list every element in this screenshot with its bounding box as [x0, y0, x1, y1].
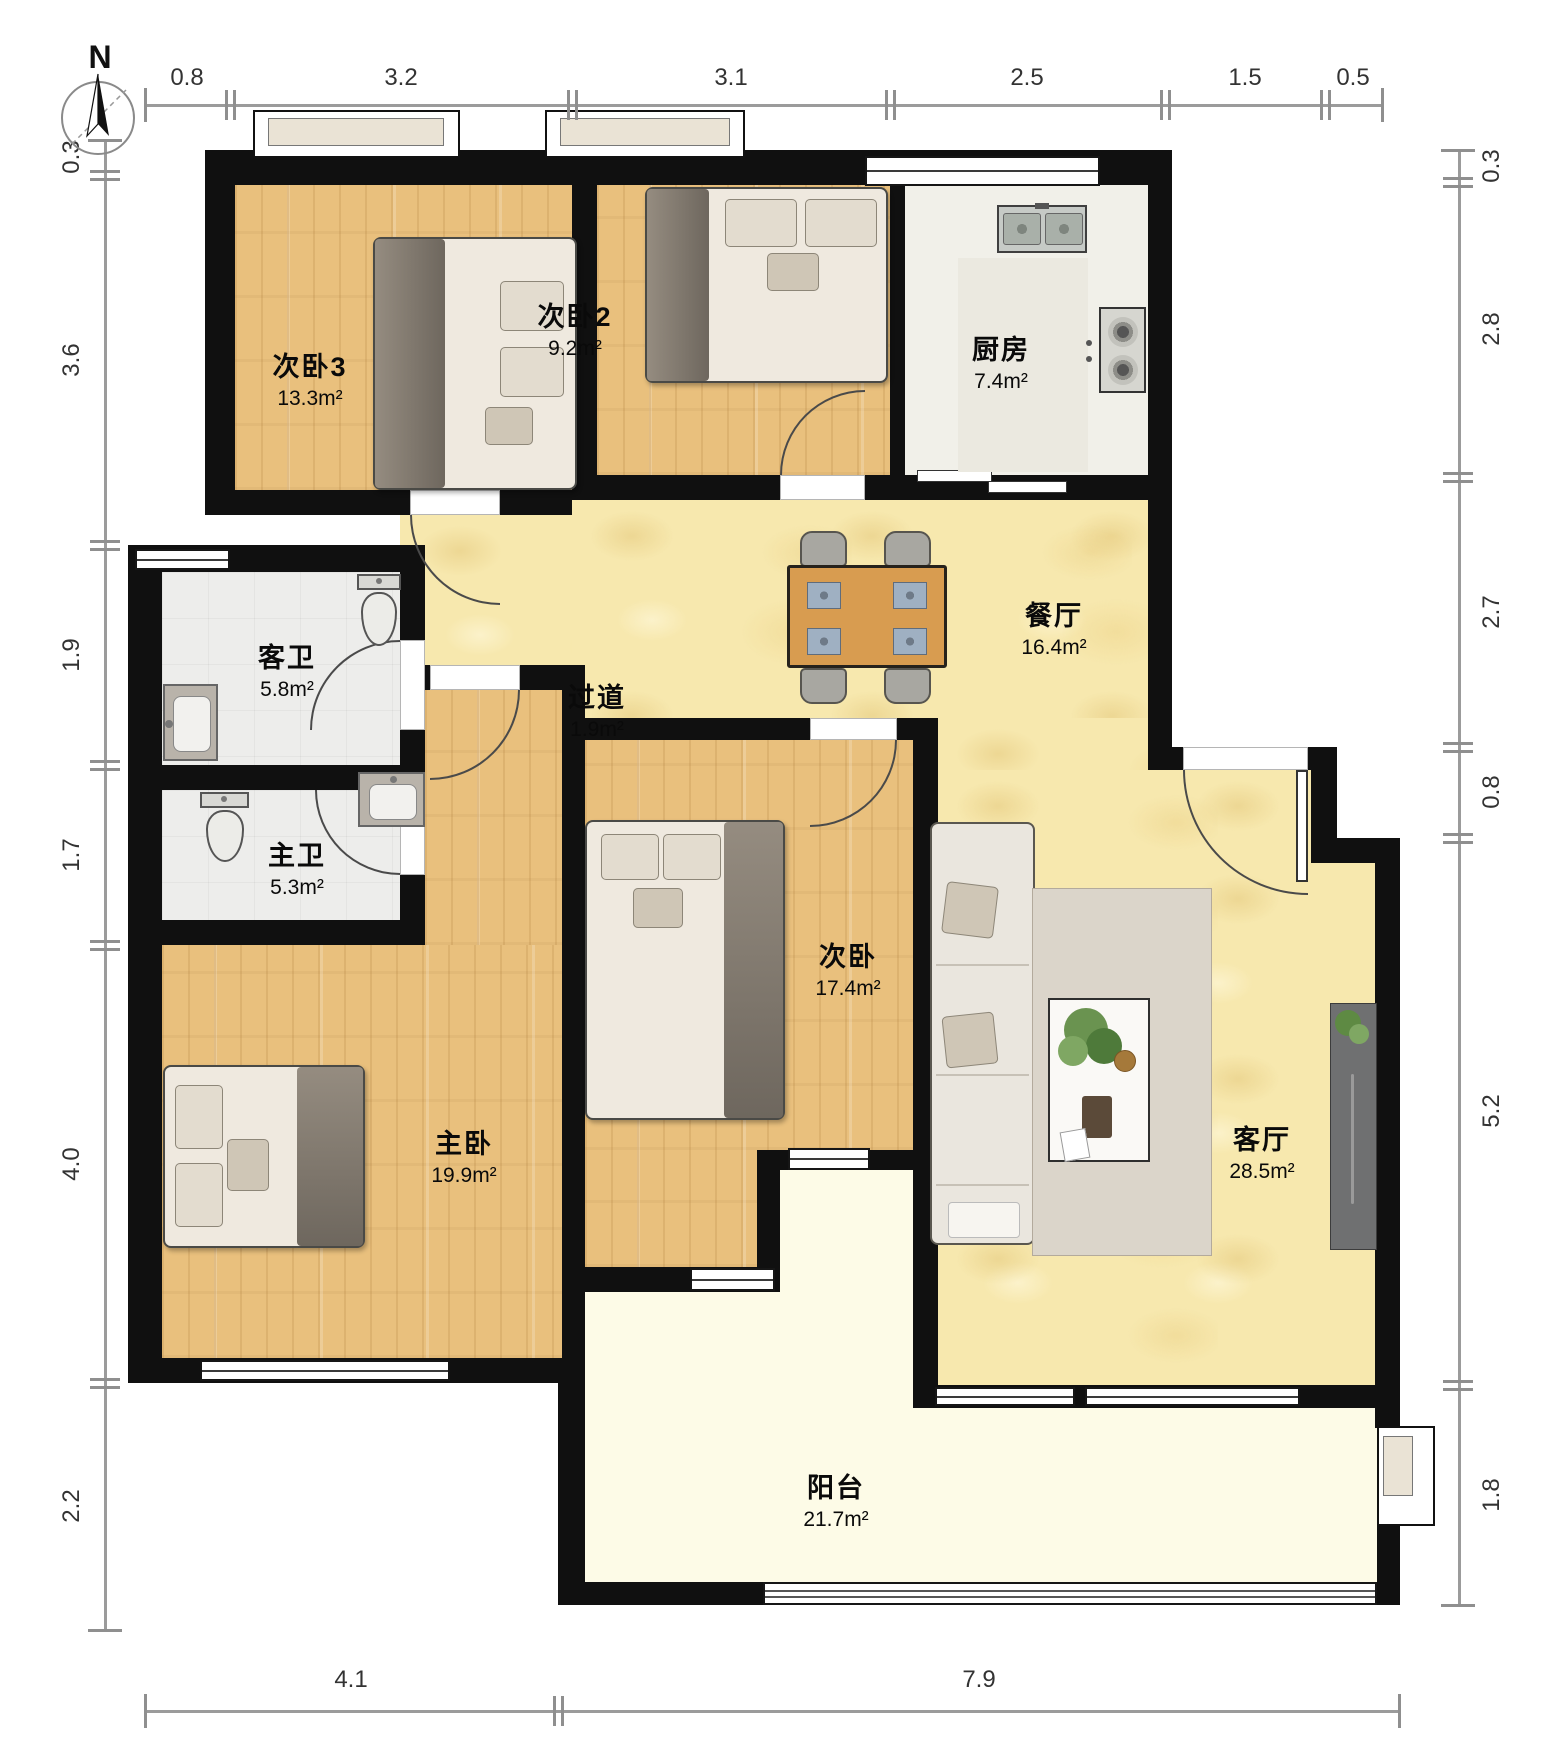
- room-name: 次卧: [815, 935, 880, 974]
- dim-label: 1.8: [1478, 1478, 1506, 1511]
- bay-window-sill: [560, 118, 730, 146]
- room-label-master-bedroom: 主卧 19.9m²: [431, 1122, 496, 1188]
- room-name: 过道: [568, 676, 626, 715]
- wall: [205, 150, 235, 515]
- door-second-bedroom: [810, 718, 897, 740]
- floor-balcony-right: [913, 1408, 1377, 1582]
- door-bedroom3: [410, 490, 500, 515]
- wall: [868, 1150, 913, 1170]
- dim-tick: [90, 548, 120, 551]
- window-kitchen: [865, 156, 1100, 186]
- dim-line-top: [145, 104, 1382, 107]
- dim-label: 4.1: [334, 1666, 367, 1694]
- dim-tick: [1443, 833, 1473, 836]
- ac-platform-inner: [1383, 1436, 1413, 1496]
- dim-label: 3.2: [384, 64, 417, 92]
- room-label-bedroom2: 次卧2 9.2m²: [537, 295, 612, 361]
- room-name: 主卧: [431, 1122, 496, 1161]
- wall: [1375, 838, 1400, 1428]
- wall: [500, 490, 572, 515]
- dim-label: 0.8: [170, 64, 203, 92]
- dim-tick: [90, 1378, 120, 1381]
- dining-chair: [800, 668, 847, 704]
- wall: [558, 1582, 763, 1605]
- wall: [128, 920, 425, 945]
- toilet-guest-bath: [357, 574, 402, 648]
- sink-master-bath: [358, 772, 425, 827]
- dim-tick: [1441, 1604, 1475, 1607]
- bay-window-sill: [268, 118, 444, 146]
- dim-tick: [1328, 90, 1331, 120]
- room-label-master-bath: 主卫 5.3m²: [268, 834, 326, 900]
- bed-bedroom3: [373, 237, 577, 490]
- dim-tick: [1160, 90, 1163, 120]
- dim-label: 1.5: [1228, 64, 1261, 92]
- window-master-bedroom: [200, 1360, 450, 1381]
- dim-label: 2.5: [1010, 64, 1043, 92]
- stove-knob: [1086, 340, 1092, 346]
- dim-tick: [1443, 185, 1473, 188]
- dim-label: 3.6: [58, 343, 86, 376]
- stove-knob: [1086, 356, 1092, 362]
- dining-chair: [800, 531, 847, 567]
- wall: [572, 475, 780, 500]
- door-guest-bath: [400, 640, 425, 730]
- window-living-left: [935, 1387, 1075, 1406]
- stove: [1099, 307, 1146, 393]
- dining-chair: [884, 531, 931, 567]
- dim-label: 2.2: [58, 1489, 86, 1522]
- dim-tick: [1441, 149, 1475, 152]
- wall: [1311, 838, 1400, 863]
- compass: N: [48, 38, 148, 158]
- room-name: 餐厅: [1021, 594, 1086, 633]
- dim-label: 2.7: [1478, 595, 1506, 628]
- kitchen-sink: [997, 205, 1087, 253]
- room-label-living: 客厅 28.5m²: [1229, 1118, 1294, 1184]
- dim-tick: [553, 1696, 556, 1726]
- dim-tick: [1443, 480, 1473, 483]
- floor-second-bedroom-bay: [585, 1150, 757, 1267]
- dim-tick: [90, 540, 120, 543]
- dim-tick: [1381, 88, 1384, 122]
- wall: [897, 718, 913, 740]
- room-name: 次卧3: [272, 345, 347, 384]
- dim-tick: [90, 170, 120, 173]
- dim-tick: [90, 940, 120, 943]
- room-area: 16.4m²: [1021, 636, 1086, 660]
- dim-tick: [1443, 1388, 1473, 1391]
- door-master-bedroom: [430, 665, 520, 690]
- dim-tick: [885, 90, 888, 120]
- room-area: 13.3m²: [272, 387, 347, 411]
- compass-north-label: N: [88, 39, 111, 75]
- bed-bedroom2: [645, 187, 888, 383]
- wall: [1148, 150, 1172, 770]
- wall: [865, 475, 890, 500]
- dim-tick: [1443, 177, 1473, 180]
- dim-tick: [1320, 90, 1323, 120]
- wall: [400, 875, 425, 945]
- room-name: 主卫: [268, 834, 326, 873]
- dim-label: 2.8: [1478, 312, 1506, 345]
- dim-tick: [88, 1629, 122, 1632]
- dim-tick: [90, 760, 120, 763]
- balcony-railing: [763, 1582, 1377, 1605]
- dim-tick: [1443, 742, 1473, 745]
- room-label-hallway: 过道 1.9m²: [568, 676, 626, 742]
- room-name: 次卧2: [537, 295, 612, 334]
- dim-line-left: [104, 140, 107, 1630]
- wall: [128, 545, 162, 1383]
- room-label-bedroom3: 次卧3 13.3m²: [272, 345, 347, 411]
- room-name: 客卫: [258, 636, 316, 675]
- dim-label: 1.9: [58, 638, 86, 671]
- sink-guest-bath: [163, 684, 218, 761]
- wall: [780, 1150, 788, 1170]
- dining-table: [787, 565, 947, 668]
- dim-tick: [1443, 750, 1473, 753]
- dim-label: 5.2: [1478, 1094, 1506, 1127]
- compass-icon: N: [48, 38, 148, 158]
- room-area: 7.4m²: [972, 370, 1030, 394]
- dim-line-right: [1458, 150, 1461, 1605]
- bed-master: [163, 1065, 365, 1248]
- floor-dining-south: [938, 718, 1148, 770]
- wall: [1377, 1523, 1400, 1605]
- window-second-bedroom-bay: [690, 1268, 775, 1291]
- room-area: 17.4m²: [815, 977, 880, 1001]
- dim-label: 3.1: [714, 64, 747, 92]
- door-bedroom2: [780, 475, 865, 500]
- dim-tick: [1443, 472, 1473, 475]
- dim-tick: [1168, 90, 1171, 120]
- dim-tick: [225, 90, 228, 120]
- room-area: 9.2m²: [537, 337, 612, 361]
- wall: [890, 185, 905, 500]
- window-living-right: [1085, 1387, 1300, 1406]
- dim-label: 0.3: [1478, 149, 1506, 182]
- dim-tick: [575, 90, 578, 120]
- room-area: 28.5m²: [1229, 1160, 1294, 1184]
- room-name: 客厅: [1229, 1118, 1294, 1157]
- dim-label: 7.9: [962, 1666, 995, 1694]
- entry-door-leaf: [1296, 770, 1308, 882]
- dining-chair: [884, 668, 931, 704]
- dim-tick: [233, 90, 236, 120]
- wall: [558, 1383, 585, 1605]
- dim-tick: [1443, 1380, 1473, 1383]
- room-label-balcony: 阳台 21.7m²: [803, 1466, 868, 1532]
- room-label-kitchen: 厨房 7.4m²: [972, 328, 1030, 394]
- dim-tick: [893, 90, 896, 120]
- tv-cabinet: [1330, 1003, 1377, 1250]
- window-second-bedroom: [788, 1148, 870, 1170]
- room-area: 19.9m²: [431, 1164, 496, 1188]
- room-area: 21.7m²: [803, 1508, 868, 1532]
- room-name: 厨房: [972, 328, 1030, 367]
- room-name: 阳台: [803, 1466, 868, 1505]
- toilet-master-bath: [200, 792, 250, 864]
- room-label-second-bedroom: 次卧 17.4m²: [815, 935, 880, 1001]
- floor-plan: 次卧3 13.3m² 次卧2 9.2m² 厨房 7.4m² 餐厅 16.4m² …: [0, 0, 1564, 1751]
- kitchen-sliding-door-panel: [988, 481, 1067, 493]
- wall: [205, 490, 410, 515]
- dim-tick: [567, 90, 570, 120]
- coffee-table: [1048, 998, 1150, 1162]
- sofa: [930, 822, 1035, 1245]
- dim-tick: [1398, 1694, 1401, 1728]
- dim-label: 0.5: [1336, 64, 1369, 92]
- dim-tick: [90, 768, 120, 771]
- dim-label: 1.7: [58, 838, 86, 871]
- bed-second-bedroom: [585, 820, 785, 1120]
- dim-label: 4.0: [58, 1147, 86, 1180]
- dim-tick: [90, 178, 120, 181]
- floor-balcony-left: [585, 1292, 780, 1582]
- room-area: 5.8m²: [258, 678, 316, 702]
- dim-label: 0.8: [1478, 775, 1506, 808]
- room-label-guest-bath: 客卫 5.8m²: [258, 636, 316, 702]
- room-area: 1.9m²: [568, 718, 626, 742]
- dim-tick: [90, 1386, 120, 1389]
- window-guest-bath: [135, 549, 230, 570]
- entry-door-opening: [1183, 747, 1308, 770]
- dim-tick: [90, 948, 120, 951]
- room-label-dining: 餐厅 16.4m²: [1021, 594, 1086, 660]
- dim-tick: [561, 1696, 564, 1726]
- dim-line-bottom: [145, 1710, 1400, 1713]
- wall: [1308, 747, 1337, 770]
- dim-tick: [144, 1694, 147, 1728]
- room-area: 5.3m²: [268, 876, 326, 900]
- dim-tick: [1443, 841, 1473, 844]
